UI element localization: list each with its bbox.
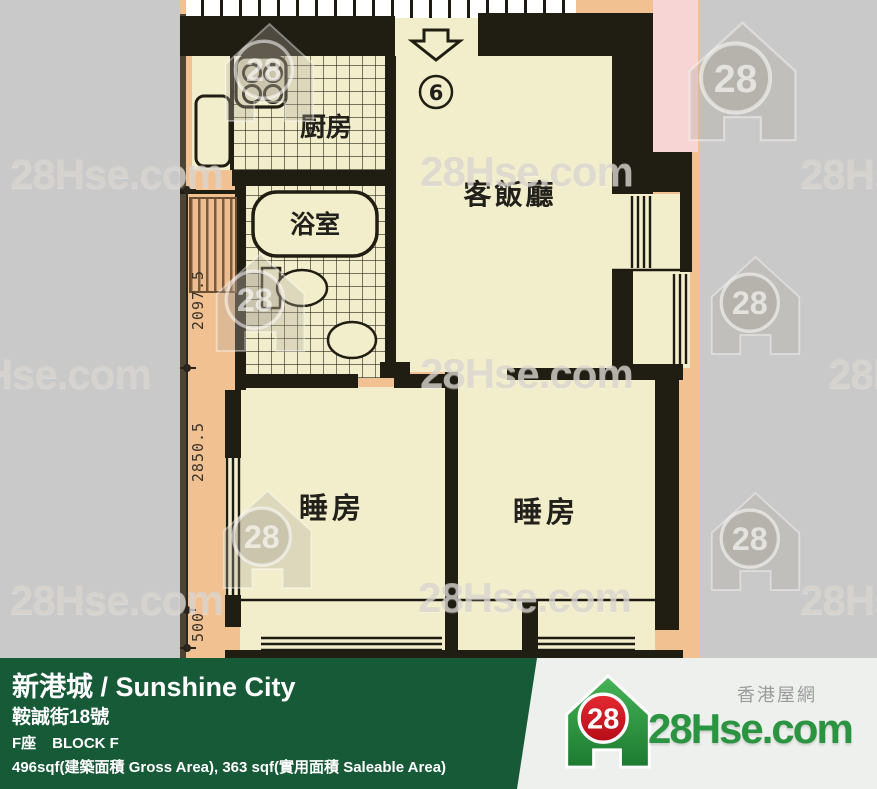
dimension-middle: 2850.5 [189, 422, 207, 482]
block-en: BLOCK F [52, 735, 119, 752]
floorplan-svg: 厨房 浴室 客飯廳 睡房 睡房 6 2097.5 2850.5 500 [180, 0, 700, 658]
watermark-text: 28Hse.com [0, 350, 151, 398]
property-block: F座BLOCK F [12, 732, 119, 753]
watermark-house-icon: 28 [685, 18, 800, 145]
block-zh: F座 [12, 735, 36, 752]
label-bathroom: 浴室 [290, 210, 340, 239]
floorplan-image: 厨房 浴室 客飯廳 睡房 睡房 6 2097.5 2850.5 500 [180, 0, 700, 658]
logo-badge: 28 [587, 704, 619, 736]
svg-text:28: 28 [714, 58, 757, 101]
dimension-lower: 500 [189, 612, 207, 642]
washer-icon [196, 96, 230, 166]
label-bedroom-1: 睡房 [299, 491, 365, 525]
watermark-house-icon: 28 [708, 489, 803, 594]
svg-text:28: 28 [732, 521, 768, 557]
watermark-text: 28Hse.com [828, 350, 877, 398]
watermark-text: 28Hse.com [800, 576, 877, 624]
dimension-upper: 2097.5 [189, 270, 207, 330]
floorplan-page: 厨房 浴室 客飯廳 睡房 睡房 6 2097.5 2850.5 500 28 [0, 0, 877, 789]
property-area: 496sqf(建築面積 Gross Area), 363 sqf(實用面積 Sa… [12, 756, 446, 777]
property-info-banner: 新港城 / Sunshine City 鞍誠街18號 F座BLOCK F 496… [0, 658, 537, 789]
watermark-house-icon: 28 [708, 253, 803, 358]
28hse-logo-house-icon: 28 [563, 674, 653, 770]
label-kitchen: 厨房 [300, 113, 352, 143]
label-living-dining: 客飯廳 [463, 178, 556, 211]
28hse-brand: 28Hse.com [648, 705, 852, 753]
unit-number: 6 [429, 81, 444, 105]
plan-left-edge [180, 14, 186, 658]
label-bedroom-2: 睡房 [513, 495, 579, 529]
watermark-text: 28Hse.com [800, 150, 877, 198]
logo-tagline: 香港屋網 [737, 681, 817, 707]
svg-text:28: 28 [732, 285, 768, 321]
toilet-icon [277, 270, 327, 306]
property-address: 鞍誠街18號 [12, 702, 109, 729]
adjacent-flat-area [653, 0, 698, 152]
sink-icon [328, 322, 376, 358]
property-title: 新港城 / Sunshine City [12, 665, 296, 704]
